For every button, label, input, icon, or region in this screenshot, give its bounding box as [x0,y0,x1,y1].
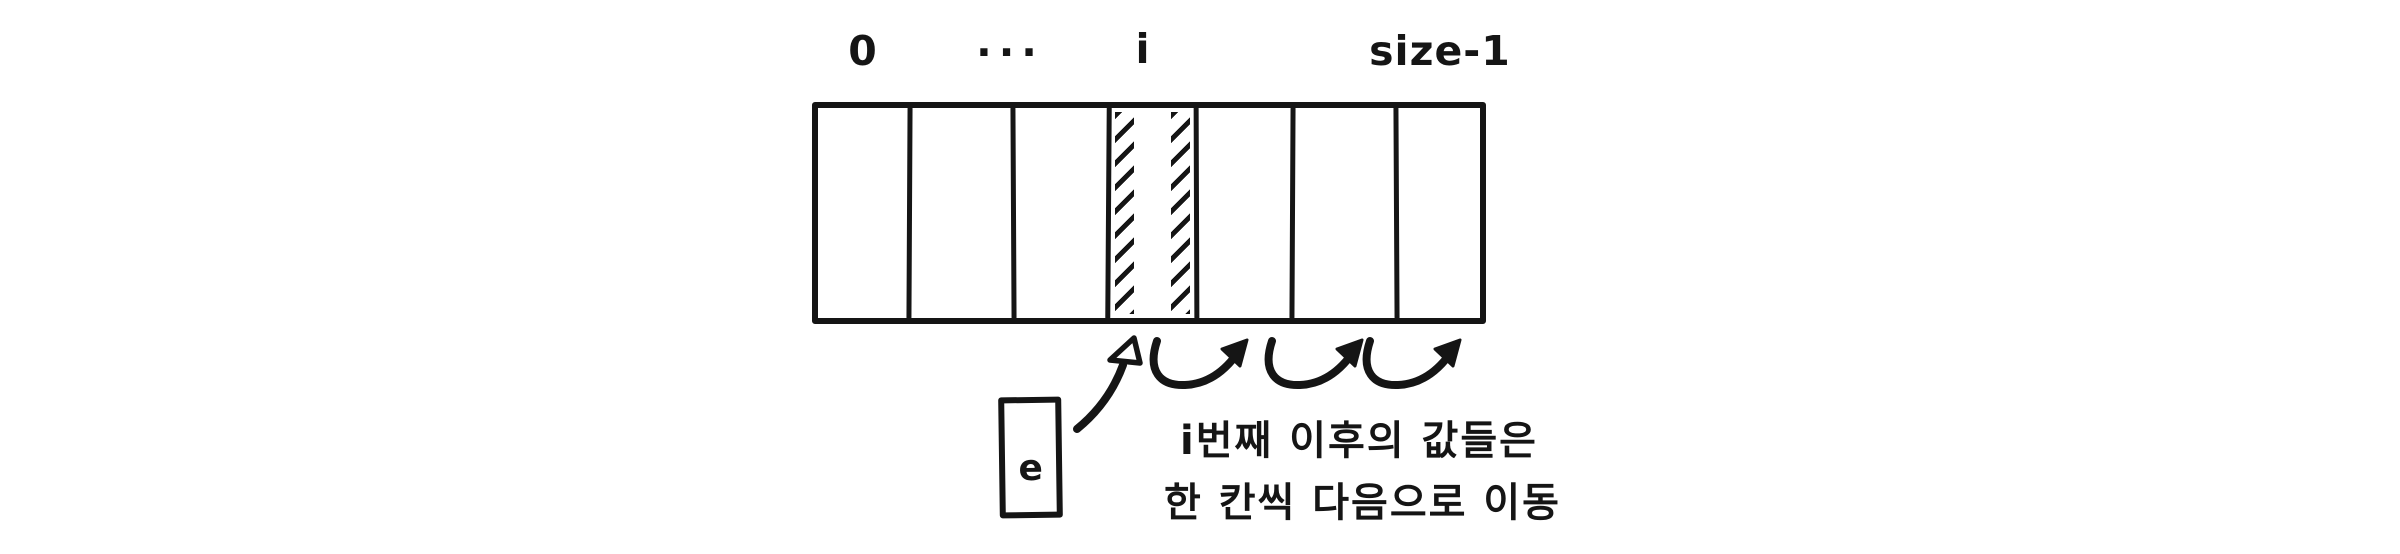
index-label-size-minus-1: size-1 [1369,27,1511,75]
hatch-marks-left [1115,112,1134,314]
hop-right-arrow-icon [1367,340,1460,385]
array-cell [1295,108,1394,318]
hatch-marks-right [1171,112,1190,314]
array-insert-diagram: 0 ... i size-1 [0,0,2400,554]
index-label-ellipsis: ... [976,18,1044,66]
caption-line-1: i번째 이후의 값들은 [1180,408,1538,466]
hop-right-arrow-icon [1154,340,1247,385]
array-box [812,102,1486,324]
element-label: e [1018,448,1043,489]
element-box: e [998,397,1063,519]
array-cell [818,108,907,318]
array-cell [1016,108,1106,318]
array-cell [1199,108,1290,318]
array-cell [912,108,1011,318]
curved-up-arrow-icon [1077,338,1140,429]
index-label-i: i [1135,25,1150,73]
index-label-0: 0 [848,27,878,75]
cell-divider [1194,106,1200,320]
caption-line-2: 한 칸씩 다음으로 이동 [1164,470,1561,528]
array-cell [1399,108,1480,318]
hop-right-arrow-icon [1269,340,1362,385]
